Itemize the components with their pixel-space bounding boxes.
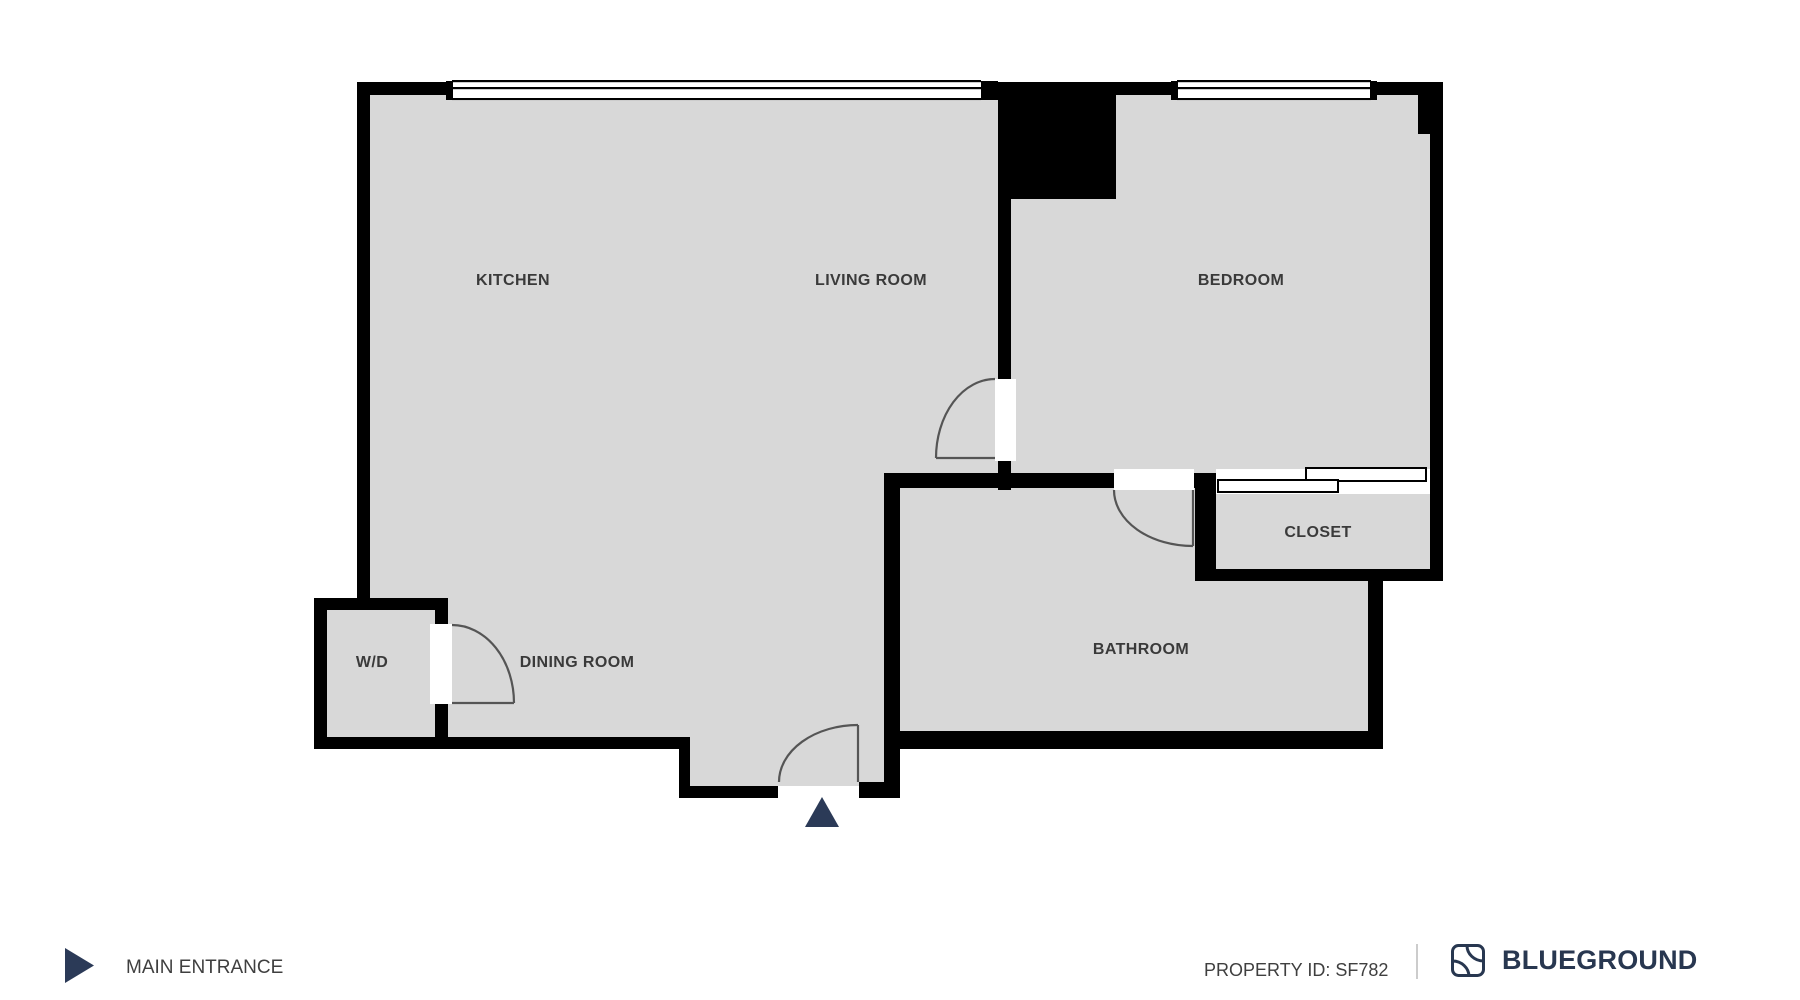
svg-text:CLOSET: CLOSET <box>1284 524 1351 541</box>
svg-text:MAIN ENTRANCE: MAIN ENTRANCE <box>126 957 283 978</box>
svg-text:BLUEGROUND: BLUEGROUND <box>1502 945 1698 975</box>
svg-text:KITCHEN: KITCHEN <box>476 272 550 289</box>
svg-text:LIVING ROOM: LIVING ROOM <box>815 272 927 289</box>
svg-text:BATHROOM: BATHROOM <box>1093 641 1189 658</box>
svg-text:PROPERTY ID: SF782: PROPERTY ID: SF782 <box>1204 960 1388 980</box>
svg-text:W/D: W/D <box>356 654 388 671</box>
svg-text:DINING ROOM: DINING ROOM <box>520 654 635 671</box>
svg-text:BEDROOM: BEDROOM <box>1198 272 1284 289</box>
